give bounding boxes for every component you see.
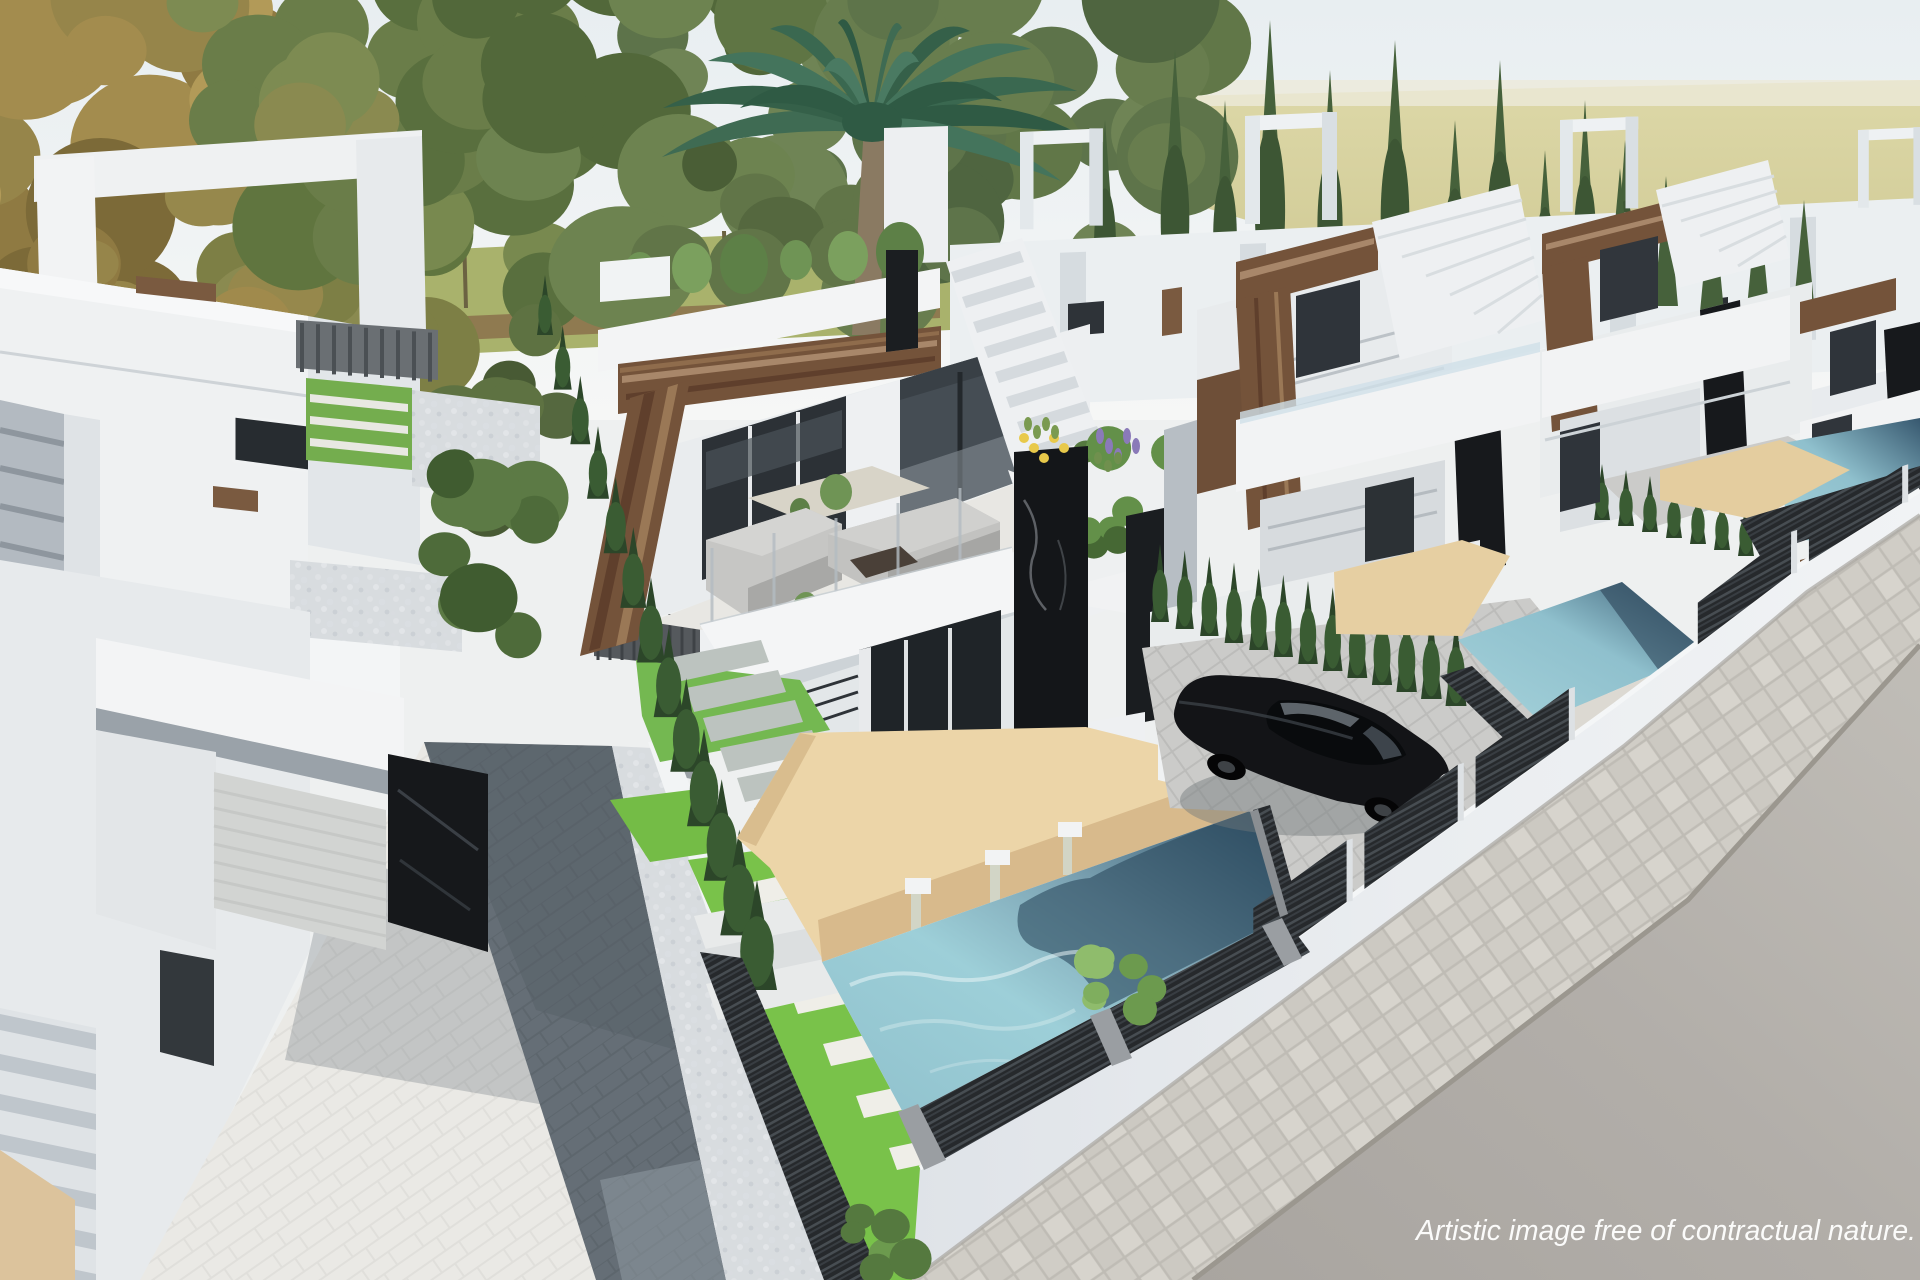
- svg-text:Artistic image free of contrac: Artistic image free of contractual natur…: [1414, 1215, 1916, 1247]
